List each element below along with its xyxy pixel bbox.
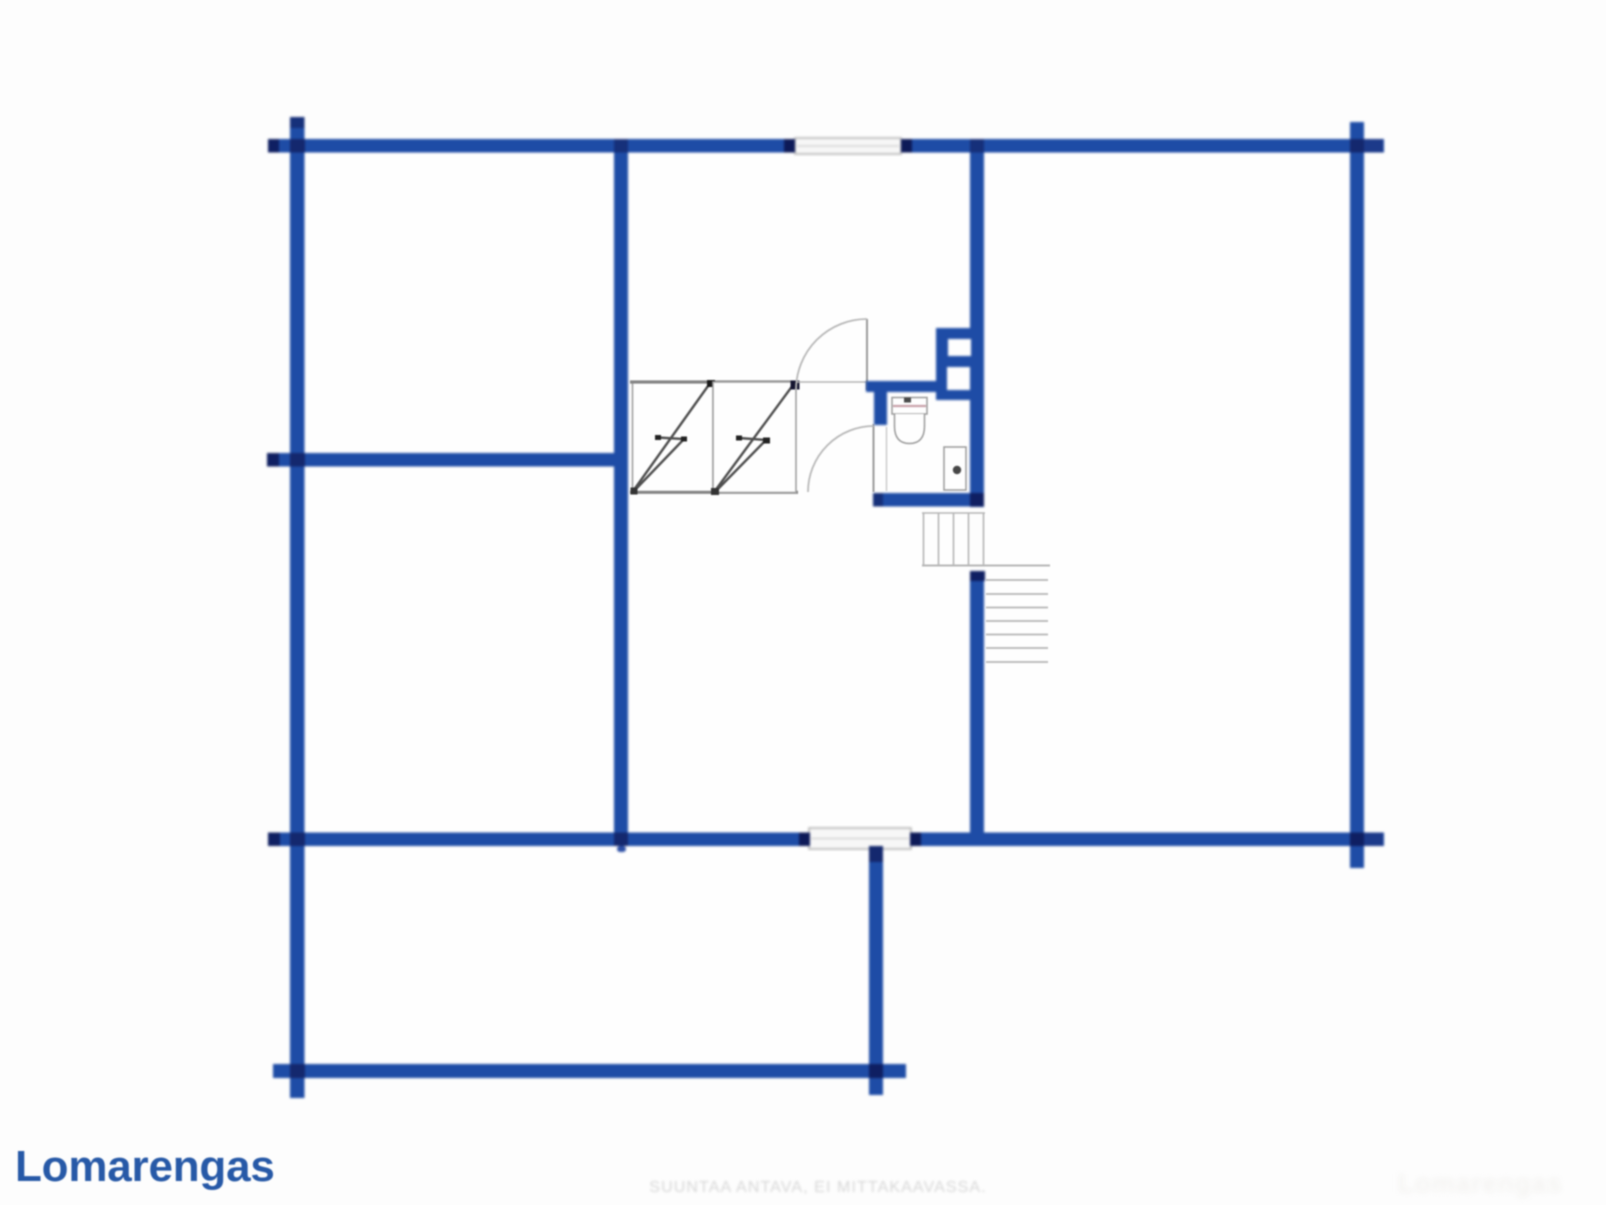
svg-text:SUUNTAA ANTAVA, EI MITTAKAAVAS: SUUNTAA ANTAVA, EI MITTAKAAVASSA. bbox=[649, 1179, 986, 1196]
svg-text:Lomarengas: Lomarengas bbox=[15, 1142, 275, 1191]
svg-text:Lomarengas: Lomarengas bbox=[1398, 1168, 1563, 1198]
